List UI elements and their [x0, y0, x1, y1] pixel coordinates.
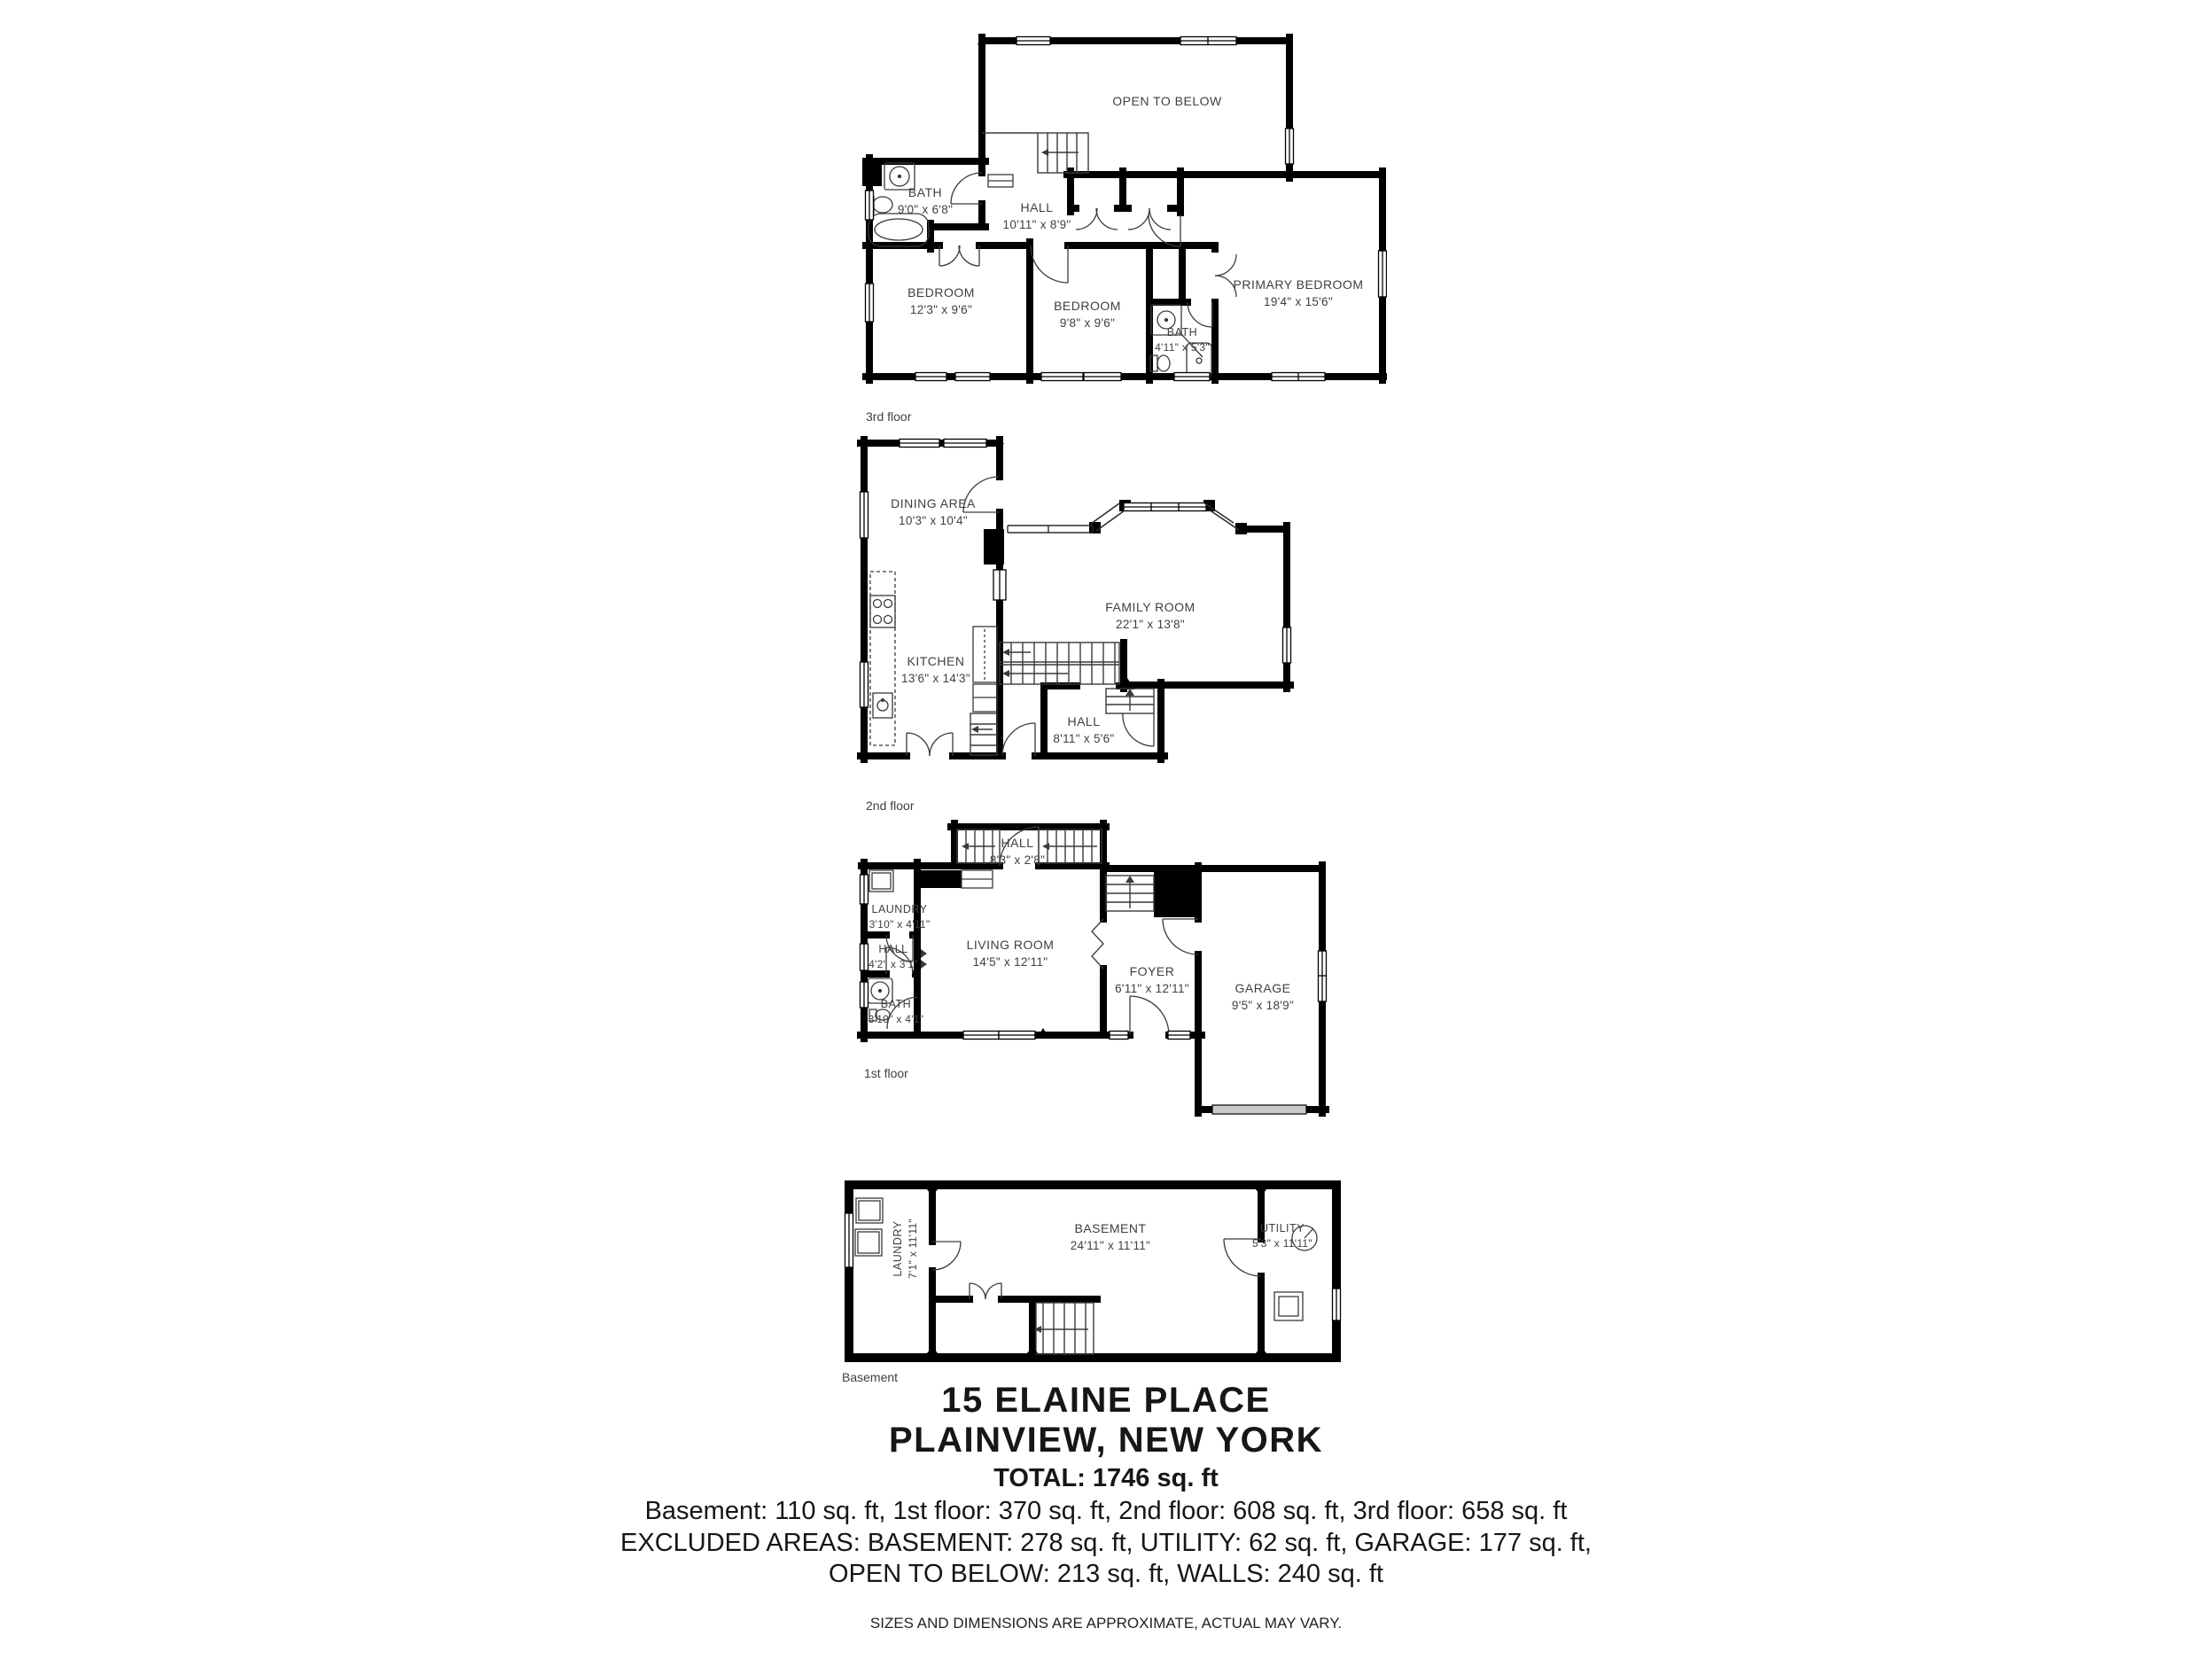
room-label: FOYER6'11" x 12'11" — [1115, 962, 1189, 998]
accordion-door — [1092, 919, 1103, 969]
floorplan-page: OPEN TO BELOW BATH9'0" x 6'8" HALL10'11"… — [0, 0, 2212, 1659]
room-label: DINING AREA10'3" x 10'4" — [891, 495, 976, 530]
stair-arrow-icon — [971, 726, 978, 733]
stair-arrow-icon — [1002, 670, 1009, 677]
stair-arrow-icon — [962, 843, 969, 850]
floorplan-1st-floor: HALL8'3" x 2'8" LAUNDRY3'10" x 4'11" HAL… — [846, 820, 1329, 1117]
address-line-2: PLAINVIEW, NEW YORK — [0, 1421, 2212, 1460]
room-label: HALL4'2" x 3'1" — [868, 941, 918, 973]
floorplan-3rd-floor: OPEN TO BELOW BATH9'0" x 6'8" HALL10'11"… — [855, 31, 1387, 425]
floor-caption-1st: 1st floor — [864, 1066, 908, 1080]
walls — [861, 823, 1326, 1113]
stair-arrow-icon — [1041, 149, 1048, 156]
room-label: FAMILY ROOM22'1" x 13'8" — [1105, 598, 1195, 634]
room-label: BASEMENT24'11" x 11'11" — [1071, 1219, 1151, 1255]
total-area: TOTAL: 1746 sq. ft — [0, 1464, 2212, 1493]
floorplan-1st-floor-drawing — [846, 820, 1329, 1117]
room-label: GARAGE9'5" x 18'9" — [1232, 979, 1294, 1015]
chimney-block — [984, 529, 1004, 565]
room-label: LIVING ROOM14'5" x 12'11" — [967, 936, 1055, 971]
stair-arrow-icon — [1125, 876, 1134, 883]
room-label: PRIMARY BEDROOM19'4" x 15'6" — [1233, 276, 1363, 311]
stair-arrow-icon — [1002, 649, 1009, 656]
floorplan-basement: LAUNDRY7'1" x 11'11" BASEMENT24'11" x 11… — [837, 1177, 1347, 1367]
room-label: HALL8'3" x 2'8" — [990, 834, 1045, 869]
floorplan-2nd-floor: DINING AREA10'3" x 10'4" FAMILY ROOM22'1… — [855, 434, 1307, 806]
room-label: BEDROOM9'8" x 9'6" — [1054, 297, 1121, 332]
door-ticks — [921, 949, 927, 969]
closet — [962, 870, 993, 888]
excluded-areas-line-2: OPEN TO BELOW: 213 sq. ft, WALLS: 240 sq… — [0, 1560, 2212, 1589]
dimension-ticks — [995, 443, 1132, 685]
floor-caption-2nd: 2nd floor — [866, 798, 914, 813]
room-label: HALL8'11" x 5'6" — [1053, 713, 1114, 748]
room-label: BATH4'11" x 5'3" — [1155, 324, 1210, 356]
room-label: BEDROOM12'3" x 9'6" — [907, 284, 975, 319]
stairs-icon — [982, 133, 1088, 173]
room-label: LAUNDRY7'1" x 11'11" — [890, 1219, 922, 1279]
room-label: BATH3'10" x 4'1" — [868, 996, 924, 1028]
wall-block — [862, 158, 882, 186]
garage-door — [1212, 1105, 1306, 1114]
room-label: KITCHEN13'6" x 14'3" — [901, 652, 970, 688]
excluded-areas-line-1: EXCLUDED AREAS: BASEMENT: 278 sq. ft, UT… — [0, 1529, 2212, 1558]
floorplan-2nd-floor-drawing — [855, 434, 1307, 806]
small-stairs-icon — [970, 713, 997, 755]
floor-caption-3rd: 3rd floor — [866, 409, 911, 424]
room-label: BATH9'0" x 6'8" — [898, 183, 953, 219]
walls — [861, 440, 1290, 759]
stairs-icon — [1000, 643, 1119, 684]
room-label: HALL10'11" x 8'9" — [1003, 199, 1071, 234]
pass-through-sill — [1008, 526, 1093, 533]
room-label: UTILITY5'3" x 11'11" — [1252, 1220, 1312, 1252]
room-label: OPEN TO BELOW — [1112, 92, 1221, 110]
hall-shelf — [988, 175, 1013, 187]
floorplan-3rd-floor-drawing — [855, 31, 1387, 425]
address-line-1: 15 ELAINE PLACE — [0, 1381, 2212, 1421]
wall-block — [920, 870, 962, 888]
area-breakdown: Basement: 110 sq. ft, 1st floor: 370 sq.… — [0, 1497, 2212, 1526]
disclaimer: SIZES AND DIMENSIONS ARE APPROXIMATE, AC… — [0, 1615, 2212, 1632]
room-label: LAUNDRY3'10" x 4'11" — [869, 901, 931, 933]
wall-block — [1154, 866, 1198, 917]
